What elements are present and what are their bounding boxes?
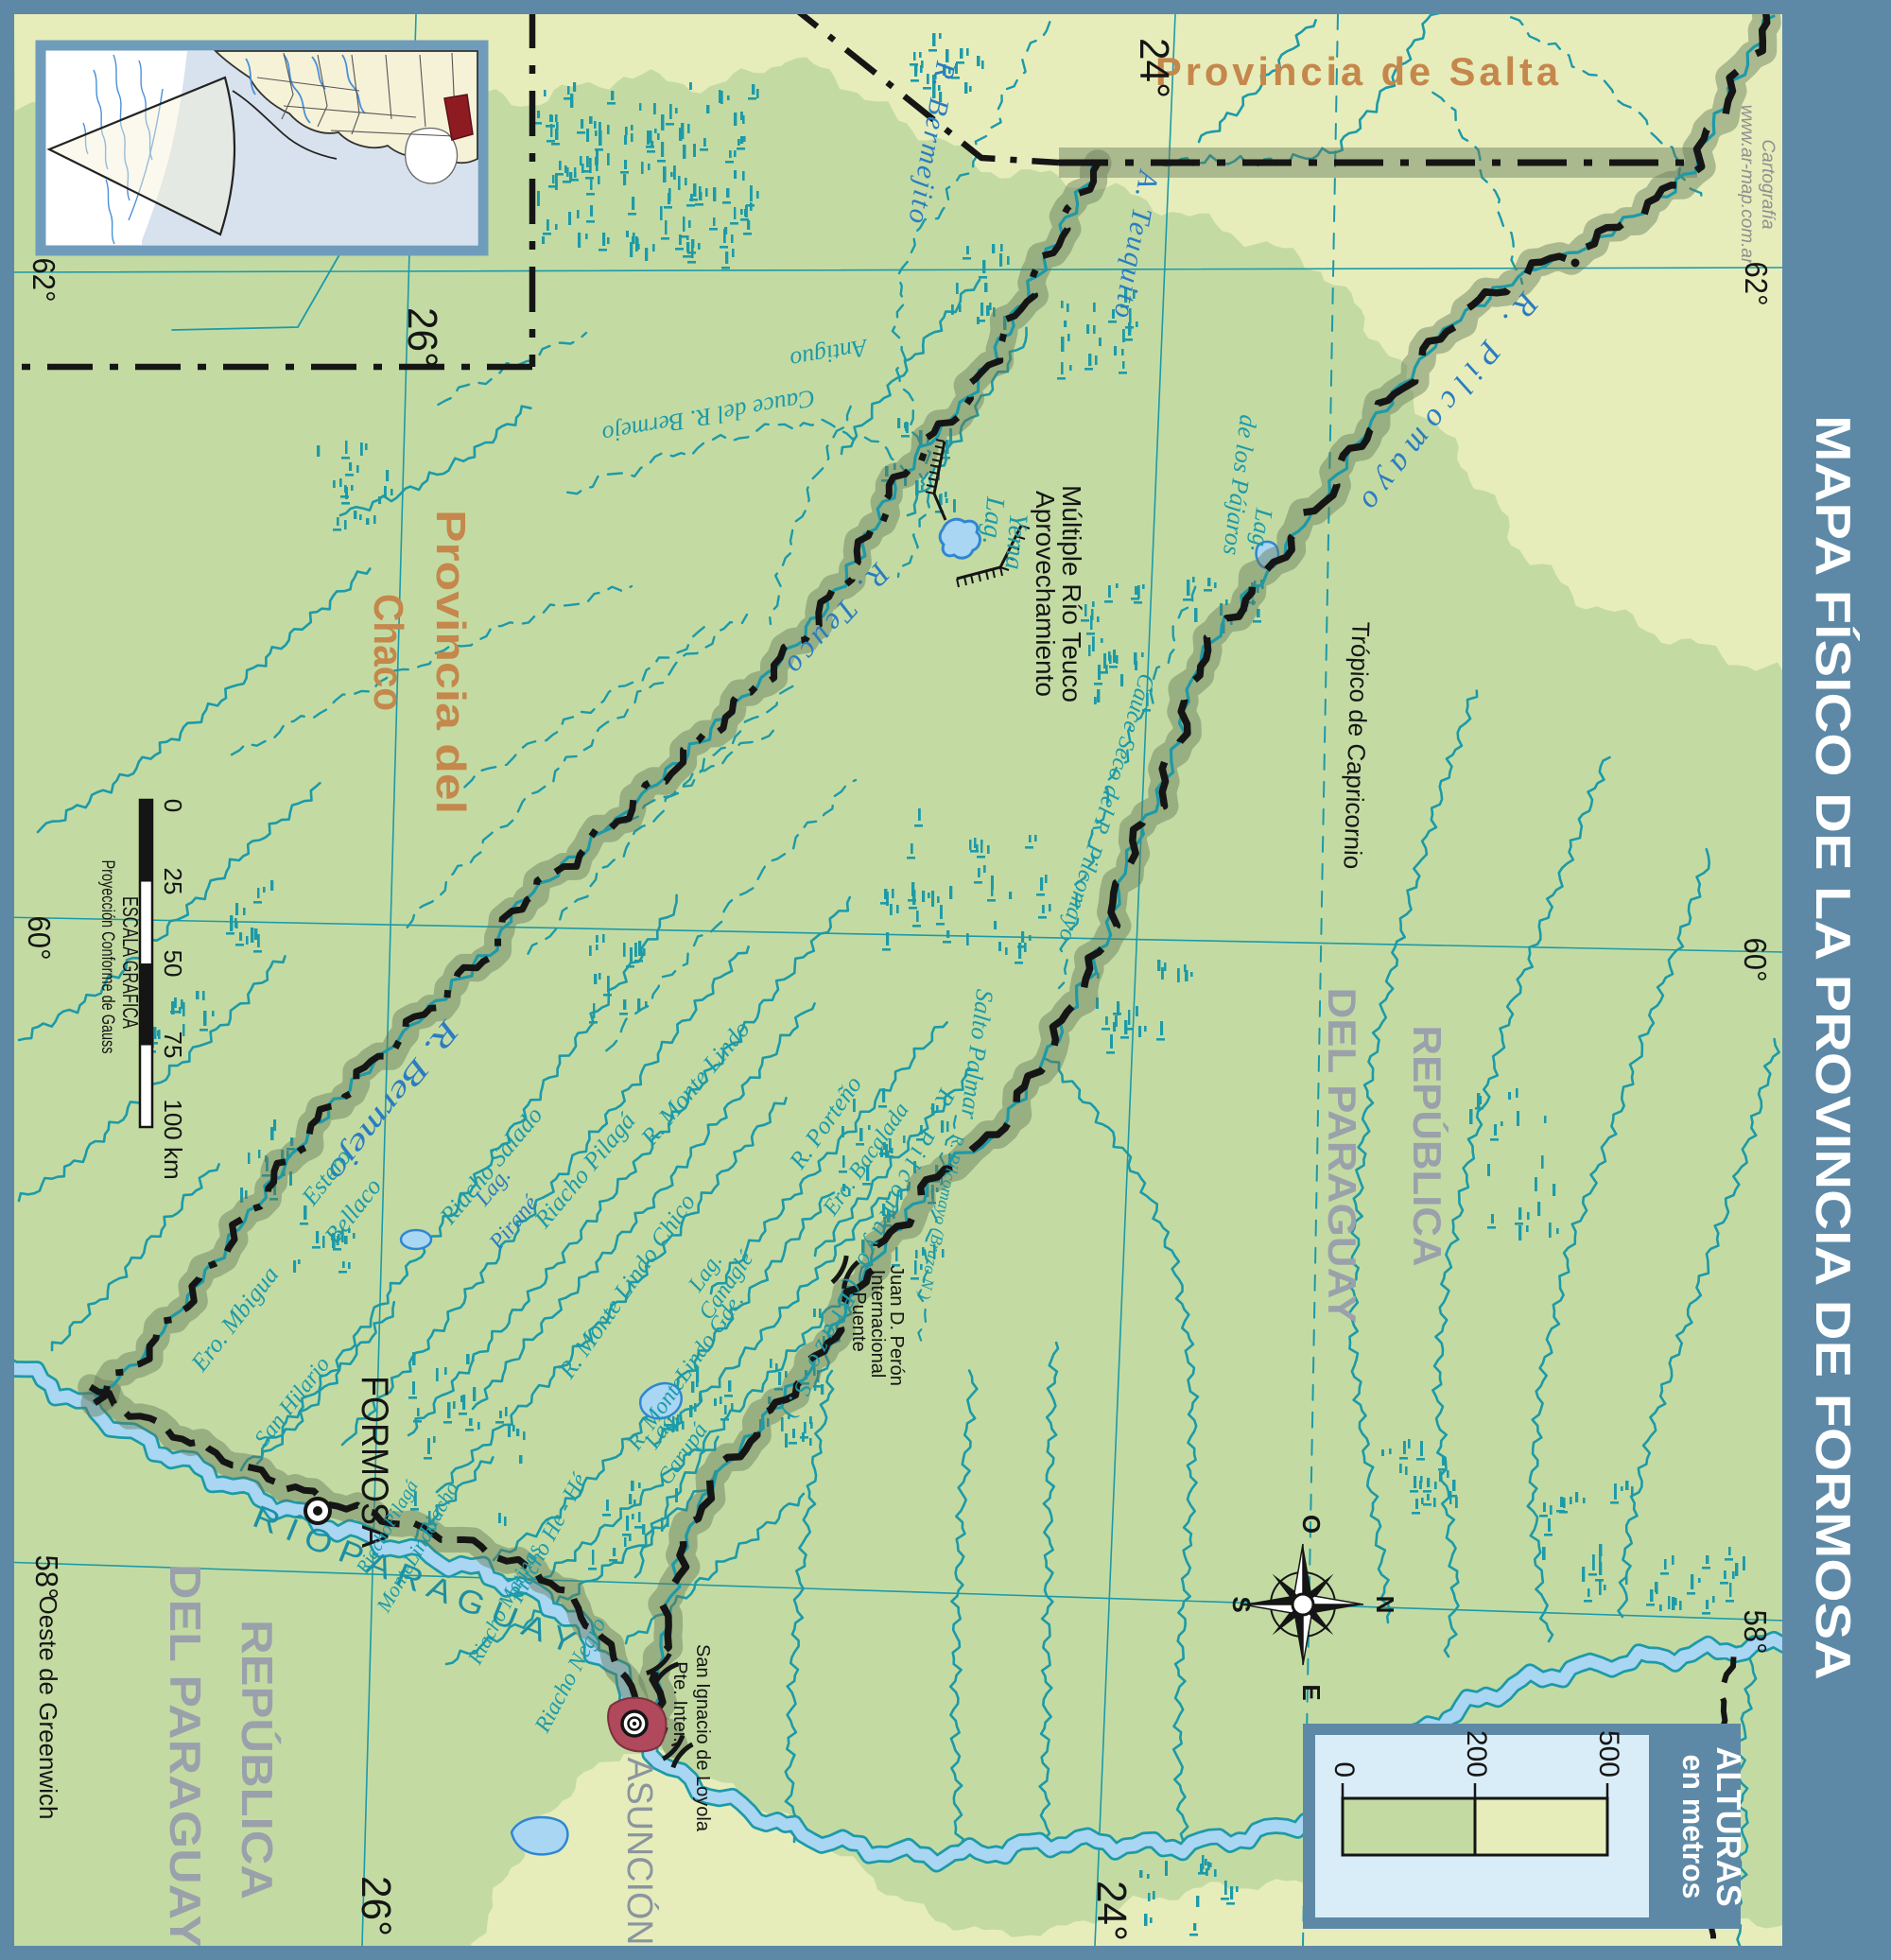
- svg-text:S: S: [1227, 1596, 1256, 1612]
- svg-text:Chaco: Chaco: [365, 594, 411, 711]
- svg-text:E: E: [1297, 1684, 1326, 1700]
- svg-text:Juan D. Perón: Juan D. Perón: [886, 1265, 907, 1386]
- svg-text:Aprovechamiento: Aprovechamiento: [1031, 491, 1060, 697]
- svg-text:58°: 58°: [1738, 1610, 1773, 1655]
- svg-text:ASUNCIÓN: ASUNCIÓN: [619, 1758, 660, 1946]
- svg-text:Múltiple Río Teuco: Múltiple Río Teuco: [1057, 485, 1086, 702]
- svg-text:REPÚBLICA: REPÚBLICA: [233, 1620, 282, 1899]
- svg-text:REPÚBLICA: REPÚBLICA: [1405, 1026, 1450, 1267]
- svg-text:DEL PARAGUAY: DEL PARAGUAY: [161, 1564, 210, 1948]
- svg-text:Internacional: Internacional: [867, 1270, 888, 1379]
- svg-text:Yema: Yema: [998, 512, 1032, 571]
- svg-text:24°: 24°: [1088, 1881, 1135, 1941]
- svg-text:San Ignacio de Loyola: San Ignacio de Loyola: [692, 1644, 713, 1832]
- svg-text:MAPA FÍSICO DE LA PROVINCIA DE: MAPA FÍSICO DE LA PROVINCIA DE FORMOSA: [1805, 415, 1860, 1680]
- svg-text:60°: 60°: [22, 916, 57, 961]
- svg-text:Pte. Inter.: Pte. Inter.: [669, 1661, 690, 1743]
- svg-text:58°: 58°: [29, 1555, 64, 1600]
- svg-text:50: 50: [159, 950, 187, 978]
- svg-text:ESCALA GRÁFICA: ESCALA GRÁFICA: [118, 896, 143, 1029]
- svg-text:0: 0: [159, 799, 187, 812]
- svg-text:Proyección Conforme de Gauss: Proyección Conforme de Gauss: [97, 860, 117, 1054]
- svg-text:0: 0: [1328, 1761, 1360, 1778]
- svg-text:100 km: 100 km: [159, 1099, 187, 1179]
- svg-text:26°: 26°: [353, 1876, 399, 1936]
- svg-text:N: N: [1371, 1596, 1399, 1614]
- svg-text:DEL PARAGUAY: DEL PARAGUAY: [1320, 988, 1364, 1324]
- svg-text:Oeste de Greenwich: Oeste de Greenwich: [34, 1595, 62, 1819]
- svg-text:26°: 26°: [399, 307, 445, 368]
- svg-text:Cartografía: Cartografía: [1758, 139, 1778, 229]
- svg-text:24°: 24°: [1131, 38, 1177, 98]
- svg-text:60°: 60°: [1738, 938, 1773, 982]
- svg-text:O: O: [1297, 1515, 1326, 1534]
- svg-text:Provincia del: Provincia del: [427, 510, 474, 814]
- svg-text:500: 500: [1593, 1730, 1624, 1778]
- svg-text:en metros: en metros: [1676, 1755, 1710, 1899]
- svg-text:ALTURAS: ALTURAS: [1709, 1746, 1748, 1906]
- svg-text:www.ar-map.com.ar: www.ar-map.com.ar: [1737, 105, 1757, 265]
- svg-text:25: 25: [159, 868, 187, 895]
- svg-text:200: 200: [1461, 1730, 1492, 1778]
- svg-text:75: 75: [159, 1032, 187, 1059]
- svg-text:62°: 62°: [1739, 262, 1774, 306]
- svg-text:62°: 62°: [26, 258, 61, 303]
- svg-text:Provincia de Salta: Provincia de Salta: [1155, 49, 1562, 94]
